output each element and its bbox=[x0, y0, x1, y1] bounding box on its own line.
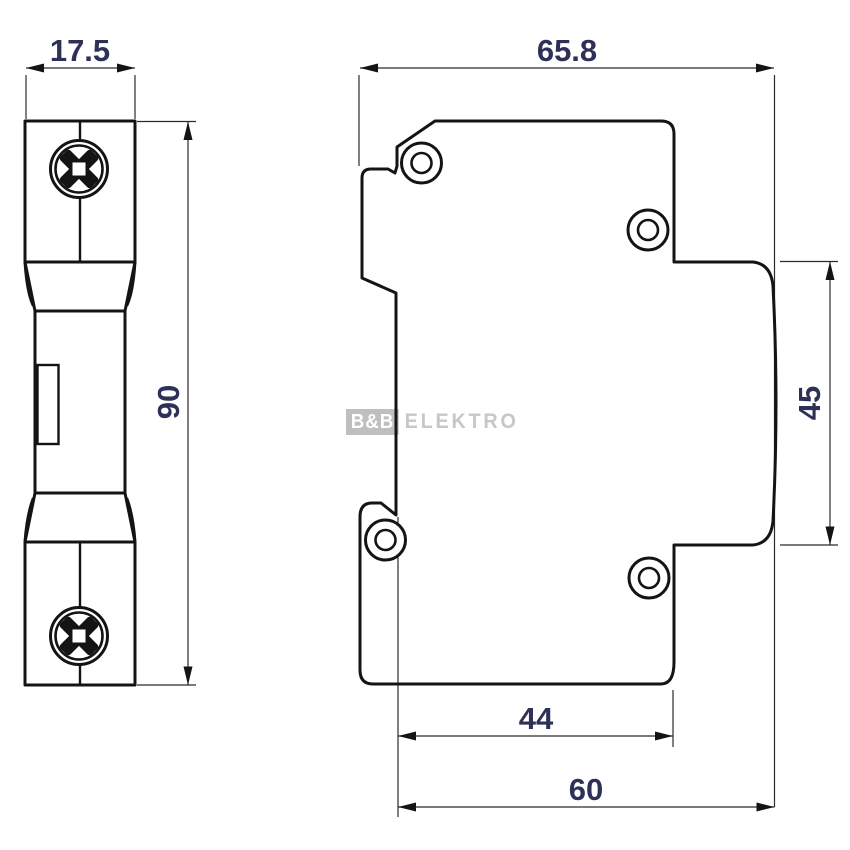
taper-curve bbox=[127, 499, 135, 542]
rivet-hole-top-left bbox=[402, 143, 442, 183]
dim-label-front-height: 90 bbox=[151, 385, 186, 419]
arrow-right-icon bbox=[117, 64, 135, 73]
side-profile-outline bbox=[360, 121, 776, 684]
technical-drawing-page: B&B ELEKTRO 17.5 90 bbox=[0, 0, 850, 850]
dim-label-front-width: 17.5 bbox=[50, 33, 110, 68]
arrow-left-icon bbox=[26, 64, 44, 73]
rivet-hole-top-right bbox=[628, 210, 668, 250]
arrow-right-icon bbox=[757, 803, 775, 812]
front-view bbox=[25, 121, 135, 685]
dim-label-front-face-height: 45 bbox=[792, 386, 827, 420]
rivet-hole-bottom-left bbox=[366, 520, 406, 560]
arrow-left-icon bbox=[398, 732, 416, 741]
arrow-down-icon bbox=[184, 667, 193, 686]
arrow-left-icon bbox=[360, 64, 378, 73]
dim-depth-to-front: 60 bbox=[398, 772, 775, 812]
dim-label-depth-to-front: 60 bbox=[569, 772, 603, 807]
arrow-up-icon bbox=[184, 122, 193, 141]
dim-label-overall-depth: 65.8 bbox=[537, 33, 597, 68]
dim-front-width: 17.5 bbox=[26, 33, 135, 73]
dim-body-depth: 44 bbox=[398, 701, 673, 741]
dim-side-overall-depth: 65.8 bbox=[360, 33, 774, 73]
side-view bbox=[360, 121, 776, 684]
arrow-left-icon bbox=[398, 803, 416, 812]
label-window bbox=[38, 365, 59, 444]
dim-front-face-height: 45 bbox=[792, 262, 835, 546]
extension-lines bbox=[26, 75, 838, 817]
arrow-right-icon bbox=[756, 64, 774, 73]
dim-label-body-depth: 44 bbox=[519, 701, 554, 736]
taper-curve bbox=[25, 499, 33, 542]
arrow-up-icon bbox=[826, 262, 835, 281]
phillips-screw-bottom-icon bbox=[48, 605, 110, 667]
arrow-down-icon bbox=[826, 527, 835, 546]
phillips-screw-top-icon bbox=[48, 138, 110, 200]
rivet-hole-bottom-right bbox=[629, 558, 669, 598]
dimension-drawing: 17.5 90 65.8 45 44 bbox=[0, 0, 850, 850]
arrow-right-icon bbox=[655, 732, 673, 741]
dim-front-height: 90 bbox=[151, 122, 193, 686]
